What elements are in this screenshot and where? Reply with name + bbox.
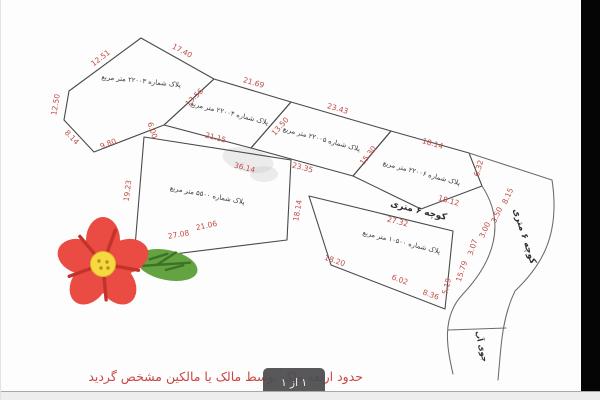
measurement-label: 5.19 bbox=[440, 277, 453, 296]
measurement-label: 3.07 bbox=[466, 238, 480, 257]
measurement-label: 6.00 bbox=[146, 121, 160, 140]
plot-6-label: پلاک شماره ۱۰۵۰۰ متر مربع bbox=[362, 229, 441, 256]
scan-page-edge bbox=[1, 391, 600, 400]
measurement-label: 19.23 bbox=[122, 179, 134, 202]
measurement-label: 9.80 bbox=[99, 136, 118, 150]
plot-3-label: پلاک شماره ۲۲۰۰۵ متر مربع bbox=[282, 125, 361, 153]
measurement-label: 3.00 bbox=[477, 220, 492, 239]
measurement-label: 18.14 bbox=[291, 199, 304, 222]
measurement-label: 8.14 bbox=[63, 128, 81, 146]
right-alley-label: کوچه ۶ متری bbox=[510, 207, 538, 266]
stream-label: جوی آب bbox=[473, 330, 490, 363]
measurement-label: 18.14 bbox=[421, 136, 444, 151]
plot-map: 12.51 17.40 12.50 8.14 9.80 6.00 13.56 2… bbox=[1, 0, 600, 400]
cadastral-sketch-page: 12.51 17.40 12.50 8.14 9.80 6.00 13.56 2… bbox=[0, 0, 600, 400]
measurement-label: 12.51 bbox=[89, 48, 112, 68]
measurement-label: 8.15 bbox=[500, 186, 515, 205]
measurement-label: 27.32 bbox=[386, 215, 409, 229]
flower-center-icon bbox=[91, 252, 116, 277]
alley-cross-line bbox=[448, 328, 506, 330]
measurement-label: 27.08 bbox=[167, 228, 190, 241]
measurement-label: 6.02 bbox=[390, 273, 409, 287]
measurement-label: 12.50 bbox=[49, 93, 62, 116]
plot-2-label: پلاک شماره ۲۲۰۰۴ متر مربع bbox=[190, 100, 269, 127]
measurement-label: 21.06 bbox=[195, 219, 218, 232]
measurement-label: 15.79 bbox=[454, 259, 469, 282]
measurement-label: 21.69 bbox=[242, 75, 265, 90]
measurement-label: 8.36 bbox=[421, 288, 440, 302]
measurement-label: 6.32 bbox=[472, 159, 485, 178]
measurement-label: 15.30 bbox=[358, 144, 378, 167]
plot-4-label: پلاک شماره ۲۲۰۰۶ متر مربع bbox=[382, 159, 461, 187]
measurement-label: 23.35 bbox=[291, 161, 314, 175]
plot-5-label: پلاک شماره ۵۵۰۰ متر مربع bbox=[169, 184, 245, 206]
letterbox-right bbox=[581, 0, 600, 391]
measurement-label: 21.15 bbox=[204, 131, 227, 145]
plot-1-label: پلاک شماره ۲۲۰۰۳ متر مربع bbox=[101, 73, 181, 89]
measurement-label: 3.50 bbox=[489, 205, 504, 224]
